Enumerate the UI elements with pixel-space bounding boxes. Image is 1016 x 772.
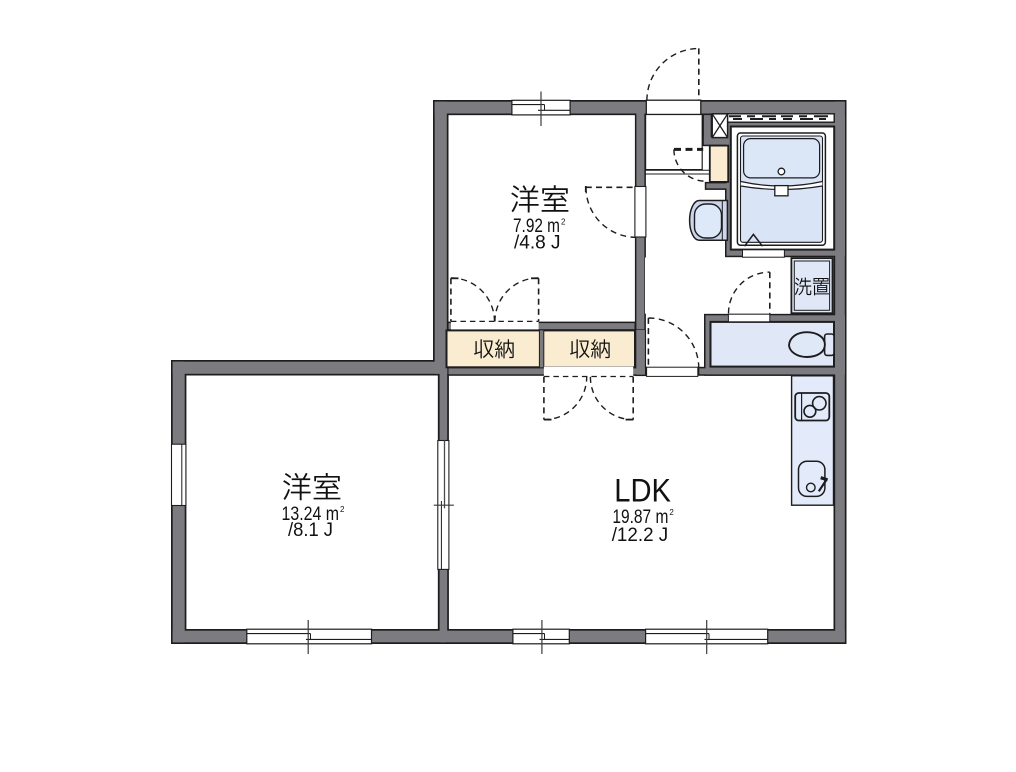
svg-text:2: 2 xyxy=(561,217,566,226)
svg-text:2: 2 xyxy=(340,505,345,514)
svg-text:/4.8 J: /4.8 J xyxy=(514,232,561,254)
svg-text:2: 2 xyxy=(669,508,674,517)
svg-text:/12.2 J: /12.2 J xyxy=(612,524,669,546)
svg-text:/8.1 J: /8.1 J xyxy=(288,519,333,541)
svg-text:LDK: LDK xyxy=(614,473,671,509)
